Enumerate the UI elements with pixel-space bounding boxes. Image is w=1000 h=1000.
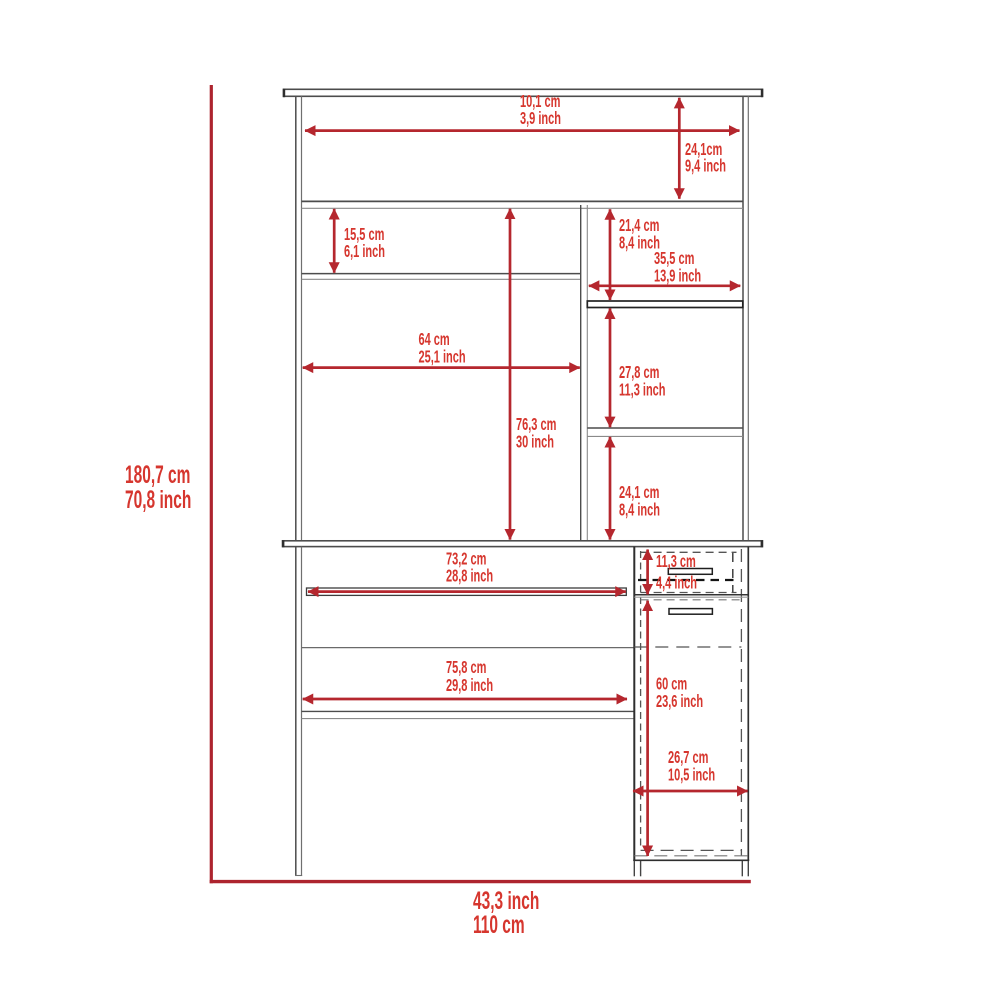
svg-text:35,5 cm: 35,5 cm: [654, 250, 694, 269]
svg-text:70,8 inch: 70,8 inch: [125, 486, 191, 514]
svg-text:26,7 cm: 26,7 cm: [668, 749, 708, 768]
svg-text:11,3 cm: 11,3 cm: [656, 553, 696, 572]
svg-text:21,4 cm: 21,4 cm: [619, 217, 659, 236]
svg-text:27,8 cm: 27,8 cm: [619, 364, 659, 383]
svg-text:4,4 inch: 4,4 inch: [656, 574, 697, 593]
svg-text:24,1 cm: 24,1 cm: [619, 484, 659, 503]
svg-text:13,9 inch: 13,9 inch: [654, 267, 701, 286]
svg-text:75,8 cm: 75,8 cm: [446, 659, 486, 678]
svg-text:10,5 inch: 10,5 inch: [668, 766, 715, 785]
svg-text:8,4 inch: 8,4 inch: [619, 501, 660, 520]
svg-text:25,1 inch: 25,1 inch: [419, 348, 466, 367]
svg-text:11,3 inch: 11,3 inch: [619, 381, 666, 400]
svg-text:60 cm: 60 cm: [656, 675, 687, 694]
svg-text:9,4 inch: 9,4 inch: [685, 157, 726, 176]
svg-text:23,6 inch: 23,6 inch: [656, 692, 703, 711]
svg-text:6,1 inch: 6,1 inch: [344, 243, 385, 262]
svg-text:28,8 inch: 28,8 inch: [446, 567, 493, 586]
svg-text:110 cm: 110 cm: [473, 911, 525, 939]
svg-text:3,9 inch: 3,9 inch: [520, 110, 561, 129]
svg-text:76,3 cm: 76,3 cm: [516, 416, 556, 435]
svg-text:64 cm: 64 cm: [419, 331, 450, 350]
svg-text:29,8 inch: 29,8 inch: [446, 676, 493, 695]
svg-text:15,5 cm: 15,5 cm: [344, 226, 384, 245]
svg-text:30 inch: 30 inch: [516, 433, 554, 452]
svg-text:180,7 cm: 180,7 cm: [125, 461, 190, 489]
svg-text:10,1 cm: 10,1 cm: [520, 93, 560, 112]
